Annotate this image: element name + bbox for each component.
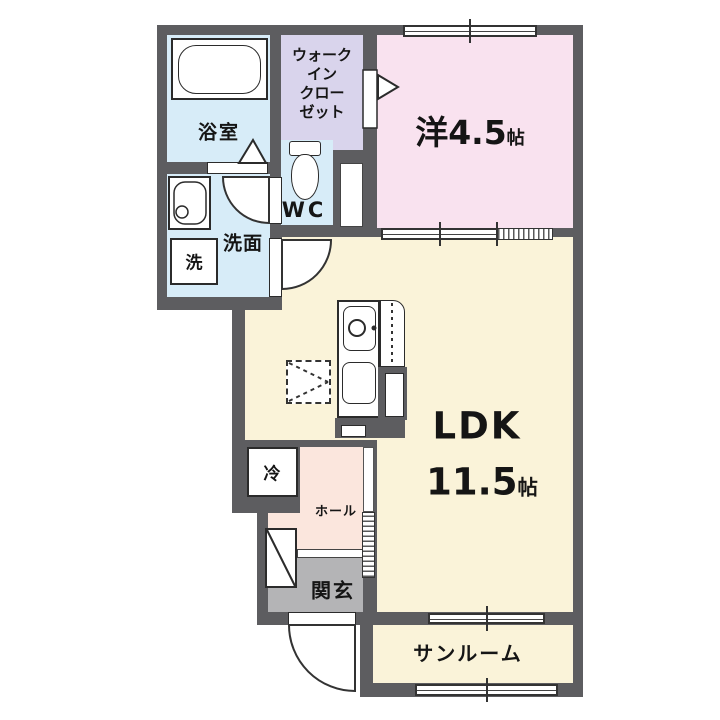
ldk-label: LDK [433,405,522,448]
ldk-unit: 帖 [517,476,537,500]
western-room-unit: 帖 [507,128,525,149]
closet-label-line2: イン [292,65,352,84]
closet-label-line1: ウォーク [292,46,352,65]
sliding-door-track [363,447,374,512]
closet-label-line4: ゼット [292,103,352,122]
hall-label: ホール [315,501,357,520]
exterior-left-notch [232,513,257,625]
vanity-sink [168,176,211,230]
window-tick [486,606,488,631]
kitchen-sink [343,306,376,351]
window-tick [469,19,471,43]
western-room-closet-sliding [497,228,553,240]
hall-sliding-door [362,512,375,578]
floor-plan: 浴室 ウォーク イン クロー ゼット WC 洗面 洗 洋4.5帖 LDK 11.… [0,0,720,720]
washroom-label: 洗面 [223,229,263,256]
toilet-bowl [291,154,319,200]
sunroom-label: サンルーム [413,638,522,667]
shoe-cabinet [265,528,297,588]
kitchen-stove [342,362,376,404]
cupboard-dashed [286,360,331,404]
ldk-size-label: 11.5帖 [426,461,538,504]
western-room-label: 洋4.5帖 [415,106,525,154]
entrance-door-leaf [288,612,356,625]
kitchen-counter-end [380,300,405,367]
window-tick [439,222,441,246]
kitchen-tall-cabinet [385,373,404,417]
ldk-door-leaf [269,238,282,297]
washer-label: 洗 [186,249,203,274]
exterior-porch [232,625,360,697]
refrigerator-label: 冷 [264,460,281,485]
bathroom-label: 浴室 [198,118,240,145]
western-room-size: 洋4.5 [415,113,506,152]
ldk-size: 11.5 [426,461,517,504]
entrance-step [297,549,363,558]
ldk-floor-left [245,310,282,440]
bathtub-inner [178,45,261,94]
pipe-space-niche [340,163,363,227]
bathroom-door-track [207,162,268,174]
closet-label-line3: クロー [292,84,352,103]
window-tick [496,222,498,246]
wc-label: WC [282,198,327,222]
walk-in-closet-label: ウォーク イン クロー ゼット [292,46,352,122]
washroom-door-leaf [269,177,282,224]
entrance-label: 関玄 [311,575,355,604]
kitchen-stub-panel [341,425,366,437]
window-tick [486,678,488,702]
